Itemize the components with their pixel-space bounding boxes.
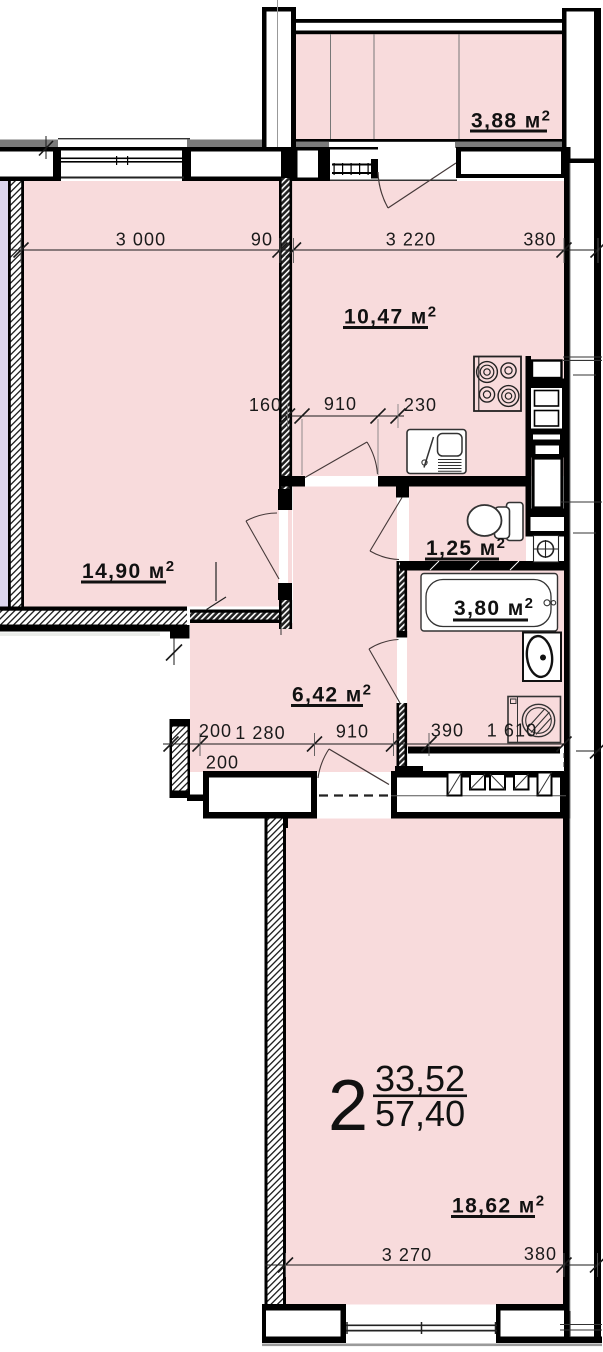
svg-text:160: 160 <box>249 395 282 415</box>
svg-text:14,90 м2: 14,90 м2 <box>82 558 175 583</box>
svg-text:90: 90 <box>251 230 273 250</box>
svg-text:2: 2 <box>328 1066 368 1146</box>
svg-text:3 270: 3 270 <box>382 1245 433 1265</box>
svg-text:1,25 м2: 1,25 м2 <box>426 535 506 560</box>
svg-text:200: 200 <box>199 721 232 741</box>
svg-text:3,80 м2: 3,80 м2 <box>454 595 534 620</box>
svg-text:10,47 м2: 10,47 м2 <box>344 304 437 329</box>
svg-text:910: 910 <box>336 722 369 742</box>
svg-text:380: 380 <box>524 1244 557 1264</box>
svg-text:57,40: 57,40 <box>375 1093 465 1134</box>
svg-text:390: 390 <box>431 721 464 741</box>
svg-text:6,42 м2: 6,42 м2 <box>292 682 372 707</box>
svg-text:910: 910 <box>324 394 357 414</box>
svg-text:230: 230 <box>404 395 437 415</box>
svg-text:380: 380 <box>523 230 556 250</box>
svg-text:3,88 м2: 3,88 м2 <box>471 108 551 133</box>
svg-text:200: 200 <box>206 753 239 773</box>
svg-text:3 220: 3 220 <box>386 230 437 250</box>
svg-text:3 000: 3 000 <box>116 230 167 250</box>
svg-text:1 280: 1 280 <box>235 723 286 743</box>
svg-text:18,62 м2: 18,62 м2 <box>452 1193 545 1218</box>
svg-text:1 610: 1 610 <box>487 721 538 741</box>
